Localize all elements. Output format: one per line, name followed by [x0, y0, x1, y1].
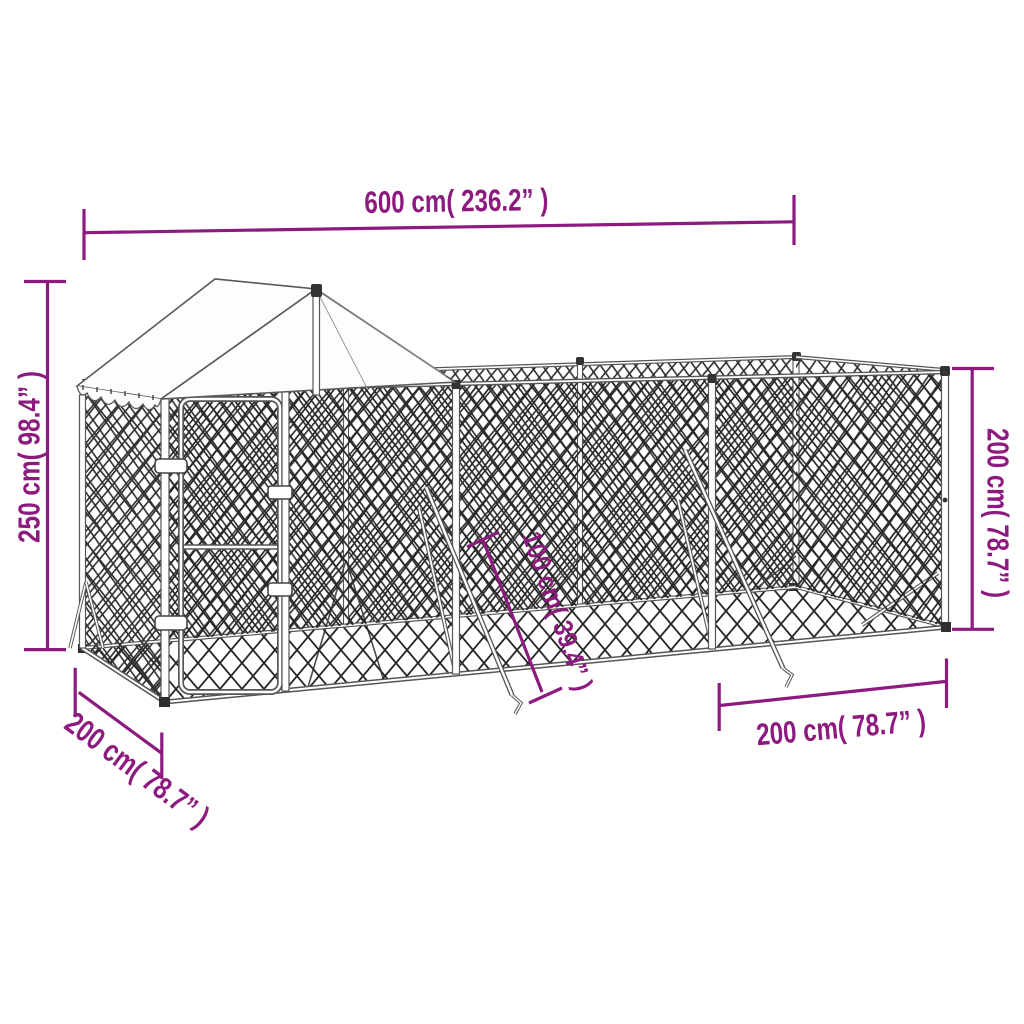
svg-text:200 cm( 78.7” ): 200 cm( 78.7” )	[981, 428, 1016, 598]
svg-text:250 cm( 98.4” ): 250 cm( 98.4” )	[12, 371, 47, 543]
svg-text:600 cm( 236.2” ): 600 cm( 236.2” )	[364, 182, 549, 220]
